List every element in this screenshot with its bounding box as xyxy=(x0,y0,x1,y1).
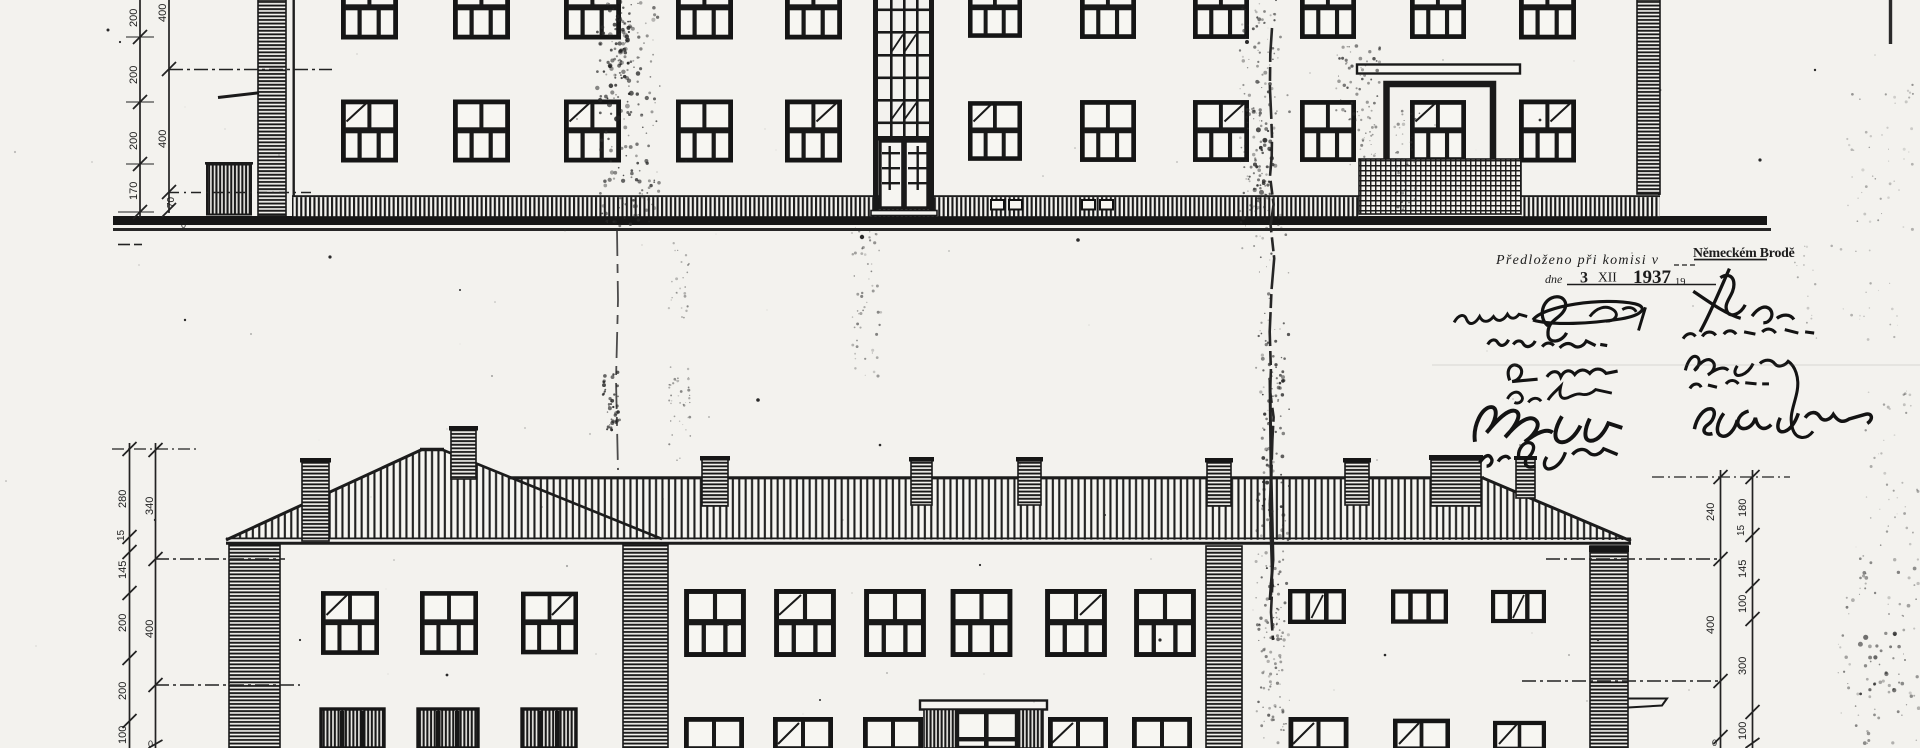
svg-text:340: 340 xyxy=(144,497,156,515)
svg-text:280: 280 xyxy=(117,490,129,508)
svg-text:400: 400 xyxy=(144,620,156,638)
svg-text:400: 400 xyxy=(157,4,169,22)
svg-text:200: 200 xyxy=(117,682,129,700)
svg-text:300: 300 xyxy=(1737,657,1749,675)
svg-text:XII: XII xyxy=(1598,270,1617,285)
svg-text:3: 3 xyxy=(1580,270,1588,287)
svg-text:dne: dne xyxy=(1545,272,1563,286)
svg-text:100: 100 xyxy=(117,726,129,744)
svg-text:15: 15 xyxy=(116,529,127,541)
svg-text:145: 145 xyxy=(1737,560,1749,578)
svg-text:15: 15 xyxy=(1736,524,1747,536)
svg-text:200: 200 xyxy=(128,132,140,150)
svg-text:1937: 1937 xyxy=(1633,267,1672,288)
svg-text:400: 400 xyxy=(157,130,169,148)
svg-text:170: 170 xyxy=(128,182,140,200)
svg-text:145: 145 xyxy=(117,561,129,579)
svg-text:0: 0 xyxy=(1712,738,1717,748)
svg-text:180: 180 xyxy=(1737,499,1749,517)
svg-text:19: 19 xyxy=(1675,277,1686,288)
svg-text:Předloženo při komisi v: Předloženo při komisi v xyxy=(1495,253,1659,268)
svg-text:200: 200 xyxy=(117,614,129,632)
svg-text:Německém Brodě: Německém Brodě xyxy=(1693,245,1795,260)
svg-text:400: 400 xyxy=(1705,616,1717,634)
svg-text:0: 0 xyxy=(148,739,153,748)
svg-text:100: 100 xyxy=(1737,722,1749,740)
svg-text:0: 0 xyxy=(181,220,186,230)
svg-text:100: 100 xyxy=(1737,595,1749,613)
svg-text:200: 200 xyxy=(128,66,140,84)
svg-text:200: 200 xyxy=(128,9,140,27)
svg-text:70: 70 xyxy=(166,196,177,208)
svg-text:240: 240 xyxy=(1705,503,1717,521)
